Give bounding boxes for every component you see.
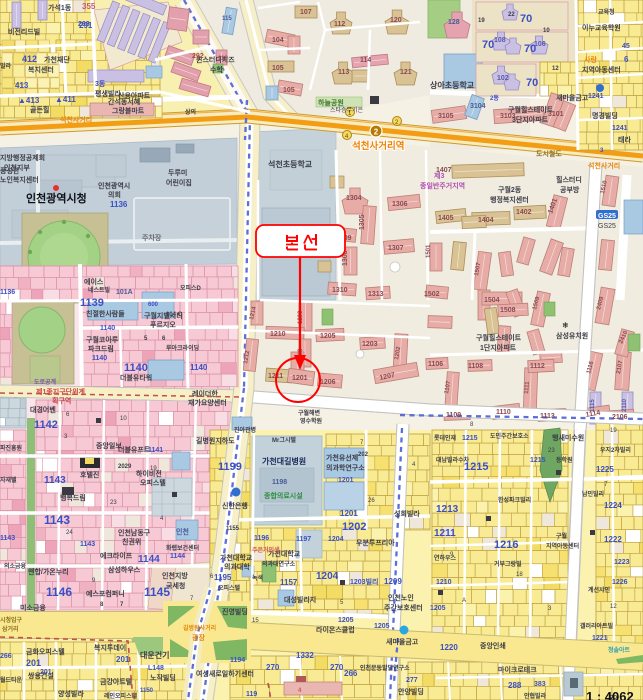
- svg-text:266: 266: [344, 669, 358, 678]
- svg-text:3동: 3동: [95, 80, 106, 88]
- svg-text:주은거인생: 주은거인생: [252, 546, 280, 554]
- svg-text:201: 201: [40, 669, 52, 676]
- svg-text:1150: 1150: [140, 688, 154, 694]
- svg-text:1140: 1140: [124, 362, 148, 374]
- svg-text:293: 293: [78, 21, 90, 28]
- svg-text:10: 10: [120, 416, 127, 422]
- svg-text:새마을금고: 새마을금고: [556, 93, 589, 102]
- svg-text:GS25: GS25: [598, 213, 616, 220]
- svg-text:1210: 1210: [436, 579, 452, 586]
- svg-text:1145: 1145: [144, 585, 170, 599]
- svg-text:1508: 1508: [500, 307, 516, 314]
- svg-text:1108: 1108: [468, 363, 483, 370]
- svg-text:갤러리아트빌: 갤러리아트빌: [580, 622, 614, 630]
- svg-text:266: 266: [0, 653, 12, 660]
- svg-text:수학: 수학: [210, 65, 223, 74]
- svg-text:1142: 1142: [34, 419, 58, 431]
- svg-text:1157: 1157: [280, 578, 298, 587]
- svg-text:1136: 1136: [110, 200, 128, 209]
- svg-text:주차장: 주차장: [142, 233, 162, 242]
- svg-text:복지투데이: 복지투데이: [94, 643, 126, 652]
- svg-text:12: 12: [610, 604, 617, 610]
- svg-text:70: 70: [482, 39, 494, 51]
- svg-text:예스포컴퍼니: 예스포컴퍼니: [86, 589, 125, 598]
- svg-text:오피스텔: 오피스텔: [218, 584, 241, 592]
- svg-text:도민주간보호소: 도민주간보호소: [490, 432, 529, 440]
- svg-text:1215: 1215: [462, 435, 478, 442]
- svg-text:1405: 1405: [438, 215, 454, 222]
- svg-text:600: 600: [148, 302, 159, 308]
- svg-text:화렙보건센터: 화렙보건센터: [166, 544, 199, 552]
- svg-text:GS25: GS25: [598, 223, 616, 230]
- svg-text:남민빌리: 남민빌리: [582, 490, 604, 498]
- svg-text:1146: 1146: [46, 585, 72, 599]
- svg-text:노인복지센터: 노인복지센터: [0, 175, 39, 184]
- svg-text:104: 104: [272, 37, 284, 44]
- svg-text:3105: 3105: [438, 113, 454, 120]
- svg-text:행정복지센터: 행정복지센터: [490, 195, 529, 204]
- svg-text:102: 102: [497, 75, 509, 82]
- svg-text:2106: 2106: [612, 414, 628, 421]
- svg-text:획구역: 획구역: [52, 396, 71, 405]
- svg-text:70: 70: [526, 77, 538, 89]
- svg-text:1306: 1306: [392, 201, 408, 208]
- svg-text:1204: 1204: [316, 571, 339, 582]
- svg-text:석천초등학교: 석천초등학교: [268, 159, 313, 169]
- svg-text:새마을금고: 새마을금고: [386, 637, 419, 646]
- svg-text:1110: 1110: [496, 409, 511, 416]
- svg-text:지방행정공제회: 지방행정공제회: [0, 153, 45, 162]
- svg-text:1224: 1224: [604, 501, 622, 510]
- svg-text:태라: 태라: [618, 135, 631, 144]
- svg-text:이누교육학원: 이누교육학원: [582, 23, 621, 32]
- svg-text:그랑블마트: 그랑블마트: [112, 106, 145, 115]
- svg-text:2029: 2029: [118, 464, 132, 470]
- svg-text:친절한사람들: 친절한사람들: [86, 309, 125, 318]
- svg-text:우지2차빌리: 우지2차빌리: [600, 446, 631, 454]
- svg-text:더블유프트: 더블유프트: [118, 445, 151, 454]
- svg-text:1113: 1113: [540, 413, 555, 420]
- svg-text:안양빌딩: 안양빌딩: [398, 687, 424, 696]
- svg-text:1140: 1140: [190, 363, 208, 372]
- svg-text:빌라: 빌라: [0, 62, 12, 70]
- svg-text:월드티운: 월드티운: [0, 676, 23, 684]
- svg-text:113: 113: [338, 69, 349, 76]
- svg-text:1144: 1144: [138, 554, 160, 565]
- svg-text:1203: 1203: [362, 341, 378, 348]
- svg-text:1140: 1140: [100, 325, 115, 332]
- svg-text:201: 201: [116, 655, 130, 664]
- svg-text:금화오피스텔: 금화오피스텔: [26, 647, 65, 656]
- svg-text:19: 19: [478, 18, 485, 24]
- svg-text:구월2동: 구월2동: [498, 185, 522, 194]
- svg-text:118: 118: [218, 56, 228, 62]
- svg-text:1 : 4062: 1 : 4062: [586, 689, 634, 700]
- svg-text:제3: 제3: [434, 171, 444, 180]
- svg-text:1205: 1205: [338, 617, 354, 624]
- svg-text:재가요양센터: 재가요양센터: [188, 398, 227, 407]
- svg-text:1332: 1332: [296, 651, 314, 660]
- svg-text:구월힐스테이트: 구월힐스테이트: [476, 333, 522, 342]
- svg-text:119: 119: [246, 691, 257, 698]
- svg-text:292: 292: [192, 53, 204, 60]
- svg-text:행복드림: 행복드림: [60, 493, 86, 502]
- svg-text:23: 23: [110, 500, 117, 506]
- svg-text:12: 12: [552, 66, 559, 72]
- svg-text:중앙인쇄: 중앙인쇄: [480, 641, 506, 650]
- svg-text:안협빌라: 안협빌라: [524, 692, 547, 700]
- svg-text:112: 112: [334, 21, 345, 28]
- svg-text:1215: 1215: [464, 461, 488, 473]
- svg-text:녹색: 녹색: [252, 574, 263, 582]
- svg-text:더블유타워: 더블유타워: [120, 373, 152, 382]
- svg-text:교육청: 교육청: [598, 8, 615, 16]
- svg-text:상아초등학교: 상아초등학교: [430, 80, 475, 90]
- svg-text:2동: 2동: [490, 94, 499, 102]
- svg-text:종합의료시설: 종합의료시설: [264, 491, 303, 500]
- svg-text:네스트빌: 네스트빌: [88, 286, 111, 294]
- svg-text:Mr그시텔: Mr그시텔: [272, 436, 296, 444]
- svg-text:288: 288: [508, 681, 522, 690]
- svg-text:거부그랑빌: 거부그랑빌: [494, 560, 522, 568]
- svg-text:1106: 1106: [428, 361, 443, 368]
- svg-text:6: 6: [624, 55, 629, 64]
- svg-text:공부방: 공부방: [560, 185, 580, 194]
- svg-text:24: 24: [66, 530, 73, 536]
- svg-text:청솔아트: 청솔아트: [608, 646, 631, 654]
- svg-text:파진흥원: 파진흥원: [0, 444, 22, 452]
- svg-text:1204: 1204: [328, 536, 344, 543]
- svg-text:라이온스클럽: 라이온스클럽: [316, 625, 355, 634]
- svg-text:친권위: 친권위: [122, 537, 141, 546]
- svg-text:시청입구: 시청입구: [0, 616, 23, 624]
- svg-text:1196: 1196: [254, 535, 269, 542]
- svg-text:상의: 상의: [185, 108, 196, 116]
- svg-text:우분투프리아: 우분투프리아: [356, 538, 395, 547]
- svg-text:18: 18: [516, 572, 523, 578]
- svg-text:114: 114: [360, 57, 371, 64]
- svg-text:1404: 1404: [478, 217, 494, 224]
- svg-text:마이크로테크: 마이크로테크: [498, 665, 537, 674]
- svg-text:비전리드빌: 비전리드빌: [8, 27, 40, 36]
- svg-text:루아크라이딩: 루아크라이딩: [166, 344, 199, 352]
- svg-text:진영빌딩: 진영빌딩: [222, 607, 248, 616]
- svg-text:1313: 1313: [368, 291, 384, 298]
- svg-text:신한은행: 신한은행: [222, 501, 248, 510]
- svg-text:의과대학: 의과대학: [224, 562, 250, 571]
- svg-text:두루미: 두루미: [168, 168, 187, 177]
- svg-text:1241: 1241: [612, 125, 628, 132]
- svg-text:1155: 1155: [226, 526, 240, 532]
- svg-text:힐스터디: 힐스터디: [556, 175, 582, 184]
- svg-text:1205: 1205: [430, 605, 446, 612]
- svg-text:파크드림: 파크드림: [88, 344, 114, 353]
- svg-text:▲411: ▲411: [55, 95, 76, 104]
- svg-text:1221: 1221: [592, 635, 608, 642]
- svg-text:A: A: [462, 598, 466, 604]
- svg-text:23: 23: [548, 448, 555, 454]
- svg-text:1143: 1143: [80, 541, 95, 548]
- svg-text:스타승무기은: 스타승무기은: [330, 106, 364, 114]
- svg-text:석천사거리역: 석천사거리역: [352, 140, 404, 152]
- svg-text:구월힐스테이트: 구월힐스테이트: [508, 105, 554, 114]
- svg-text:1241: 1241: [588, 93, 604, 100]
- svg-text:오피스D: 오피스D: [180, 284, 202, 292]
- svg-text:석천사거리: 석천사거리: [60, 115, 92, 124]
- svg-text:푸르지오: 푸르지오: [150, 320, 176, 329]
- svg-text:인천남동구: 인천남동구: [118, 528, 151, 537]
- svg-text:영수학원: 영수학원: [300, 417, 322, 425]
- svg-text:가천재단: 가천재단: [44, 55, 70, 64]
- svg-text:자재텔: 자재텔: [0, 476, 17, 484]
- svg-text:106: 106: [534, 41, 546, 48]
- svg-text:사랑: 사랑: [584, 55, 597, 64]
- svg-text:1201: 1201: [338, 477, 354, 484]
- svg-text:가석1동: 가석1동: [48, 3, 72, 12]
- svg-text:1223: 1223: [614, 559, 630, 566]
- svg-text:1109: 1109: [446, 412, 461, 419]
- svg-text:계선샤인: 계선샤인: [588, 586, 611, 594]
- svg-text:길병원사거리: 길병원사거리: [183, 624, 216, 632]
- svg-text:10: 10: [543, 28, 550, 34]
- svg-text:인천: 인천: [176, 527, 189, 536]
- svg-text:105: 105: [272, 65, 284, 72]
- svg-text:석천사거리: 석천사거리: [588, 161, 620, 170]
- svg-text:1136: 1136: [0, 289, 15, 296]
- svg-text:복지센터: 복지센터: [28, 65, 54, 74]
- svg-text:1199: 1199: [218, 461, 242, 473]
- svg-text:1304: 1304: [346, 195, 362, 202]
- svg-text:3단지아파트: 3단지아파트: [512, 115, 549, 124]
- svg-text:105: 105: [283, 87, 295, 94]
- svg-text:277: 277: [406, 677, 418, 684]
- svg-text:1502: 1502: [424, 291, 440, 298]
- svg-text:26: 26: [368, 498, 375, 504]
- svg-text:383: 383: [534, 681, 546, 688]
- svg-text:1195: 1195: [214, 573, 232, 582]
- svg-text:1215: 1215: [530, 457, 546, 464]
- svg-text:지역아동센터: 지역아동센터: [546, 542, 579, 550]
- svg-text:롯데인재: 롯데인재: [434, 434, 457, 442]
- svg-text:지역아동센터: 지역아동센터: [582, 65, 621, 74]
- svg-text:1140: 1140: [92, 355, 107, 362]
- svg-text:명경빌딩: 명경빌딩: [592, 111, 618, 120]
- svg-text:인천광역시: 인천광역시: [98, 181, 130, 190]
- svg-text:1501: 1501: [426, 244, 432, 258]
- svg-text:1143: 1143: [0, 535, 15, 542]
- svg-text:왠합/가온누리: 왠합/가온누리: [28, 567, 69, 576]
- svg-text:대경어벤: 대경어벤: [30, 405, 56, 414]
- svg-text:1206: 1206: [320, 379, 336, 386]
- svg-text:1144: 1144: [170, 553, 185, 560]
- svg-text:도로공계: 도로공계: [34, 378, 57, 386]
- svg-text:1143: 1143: [44, 475, 66, 486]
- svg-text:여성새로일하기센터: 여성새로일하기센터: [196, 669, 254, 678]
- svg-text:양성빌라: 양성빌라: [58, 689, 84, 698]
- svg-text:의소금융: 의소금융: [4, 562, 27, 570]
- svg-text:하늘공원: 하늘공원: [318, 98, 344, 107]
- svg-text:대운건기: 대운건기: [140, 650, 169, 660]
- svg-text:도시철도: 도시철도: [536, 149, 562, 158]
- svg-text:길병원지하도: 길병원지하도: [196, 436, 235, 445]
- svg-text:의과대연구소: 의과대연구소: [262, 560, 296, 568]
- svg-text:인천광역시청: 인천광역시청: [26, 191, 87, 205]
- svg-text:1205: 1205: [374, 623, 390, 630]
- svg-text:1305: 1305: [359, 214, 366, 230]
- svg-text:1139: 1139: [80, 297, 104, 309]
- svg-text:201: 201: [26, 658, 41, 668]
- svg-text:1310: 1310: [332, 287, 348, 294]
- svg-text:1209: 1209: [384, 577, 402, 586]
- svg-text:진아관병: 진아관병: [234, 426, 256, 434]
- svg-text:19: 19: [150, 466, 157, 472]
- svg-text:19: 19: [610, 428, 617, 434]
- svg-text:에크라이프: 에크라이프: [100, 551, 133, 560]
- svg-text:2110: 2110: [622, 398, 628, 412]
- svg-text:등학원: 등학원: [556, 456, 573, 464]
- svg-text:구월: 구월: [556, 532, 568, 540]
- svg-text:의과학연구소: 의과학연구소: [326, 463, 365, 472]
- svg-text:2: 2: [374, 128, 379, 137]
- svg-text:인천지부: 인천지부: [4, 163, 30, 172]
- svg-text:1201: 1201: [292, 375, 308, 382]
- svg-text:삼거리: 삼거리: [2, 625, 19, 633]
- svg-text:1201: 1201: [340, 509, 358, 518]
- svg-text:한성파크빌리: 한성파크빌리: [498, 496, 531, 504]
- svg-text:가천대길병원: 가천대길병원: [262, 456, 306, 466]
- svg-text:128: 128: [448, 19, 460, 26]
- svg-text:1194: 1194: [230, 657, 245, 664]
- svg-text:행새미수원: 행새미수원: [552, 433, 584, 442]
- svg-text:108: 108: [494, 37, 506, 44]
- svg-text:레이더한: 레이더한: [192, 389, 218, 398]
- svg-text:삼성하우스: 삼성하우스: [108, 565, 141, 574]
- svg-text:의회: 의회: [108, 190, 121, 199]
- svg-text:종일반주거지역: 종일반주거지역: [420, 181, 465, 190]
- svg-text:1216: 1216: [494, 539, 518, 551]
- svg-text:인천노인: 인천노인: [388, 593, 414, 602]
- svg-text:L148: L148: [148, 665, 164, 672]
- svg-text:1220: 1220: [440, 643, 458, 652]
- svg-text:120: 120: [390, 17, 402, 24]
- svg-text:107: 107: [300, 9, 312, 16]
- svg-text:미소금융: 미소금융: [20, 603, 46, 612]
- svg-text:3104: 3104: [470, 103, 486, 110]
- svg-text:121: 121: [400, 69, 412, 76]
- svg-text:삼성유치원: 삼성유치원: [556, 331, 588, 340]
- svg-text:하이비전: 하이비전: [136, 469, 162, 478]
- svg-text:270: 270: [330, 663, 344, 672]
- svg-text:412: 412: [22, 54, 37, 64]
- svg-text:광장: 광장: [192, 633, 205, 642]
- svg-text:성희빌라: 성희빌라: [394, 509, 420, 518]
- svg-text:101A: 101A: [116, 289, 133, 296]
- svg-text:1197: 1197: [296, 536, 311, 543]
- svg-text:1225: 1225: [596, 465, 614, 474]
- svg-text:15: 15: [252, 618, 259, 624]
- svg-text:104 C: 104 C: [166, 312, 183, 318]
- svg-text:구월코아루: 구월코아루: [86, 335, 119, 344]
- svg-text:115: 115: [222, 16, 232, 22]
- svg-text:구월해변: 구월해변: [298, 409, 320, 417]
- svg-text:1504: 1504: [484, 297, 500, 304]
- svg-text:1307: 1307: [388, 245, 404, 252]
- svg-text:1211: 1211: [434, 528, 456, 539]
- svg-text:제1종지구단위계: 제1종지구단위계: [36, 387, 85, 396]
- svg-text:1205: 1205: [320, 333, 336, 340]
- svg-text:1단지아파트: 1단지아파트: [480, 343, 517, 352]
- svg-text:1112: 1112: [530, 363, 545, 370]
- svg-text:1198: 1198: [272, 479, 287, 486]
- svg-text:1143: 1143: [44, 513, 70, 527]
- svg-text:202: 202: [358, 452, 369, 458]
- svg-text:22: 22: [508, 12, 515, 18]
- svg-text:오피스텔: 오피스텔: [140, 478, 166, 487]
- svg-text:가천유선제: 가천유선제: [326, 453, 358, 462]
- svg-text:대성빌리지: 대성빌리지: [284, 595, 316, 604]
- svg-text:1141: 1141: [148, 447, 163, 454]
- svg-text:270: 270: [266, 663, 280, 672]
- svg-text:간석동서혜: 간석동서혜: [108, 97, 140, 106]
- svg-text:413: 413: [15, 81, 29, 90]
- svg-text:골든힐: 골든힐: [30, 105, 49, 114]
- svg-text:호텔진: 호텔진: [80, 470, 99, 479]
- svg-text:1222: 1222: [604, 535, 622, 544]
- svg-text:1111: 1111: [524, 381, 531, 394]
- svg-text:1213: 1213: [436, 504, 459, 515]
- svg-text:❄: ❄: [562, 321, 569, 330]
- svg-text:인천문동발달연구소: 인천문동발달연구소: [360, 664, 410, 672]
- svg-text:1402: 1402: [516, 209, 532, 216]
- svg-text:1226: 1226: [612, 579, 628, 586]
- svg-text:▲413: ▲413: [18, 96, 40, 105]
- svg-text:1203빌리: 1203빌리: [350, 577, 378, 586]
- svg-text:에이스: 에이스: [84, 277, 104, 286]
- svg-text:금강아트텔: 금강아트텔: [100, 677, 133, 686]
- svg-text:어린이집: 어린이집: [166, 178, 192, 187]
- svg-text:가천대학교: 가천대학교: [220, 553, 253, 562]
- svg-text:인천지방: 인천지방: [162, 571, 188, 580]
- svg-text:1202: 1202: [342, 521, 366, 533]
- svg-text:70: 70: [520, 13, 532, 25]
- svg-text:1210: 1210: [270, 331, 286, 338]
- svg-text:355: 355: [82, 2, 96, 11]
- svg-text:주간보호센터: 주간보호센터: [384, 603, 423, 612]
- svg-text:노작빌딩: 노작빌딩: [150, 673, 176, 682]
- svg-text:45: 45: [622, 43, 630, 50]
